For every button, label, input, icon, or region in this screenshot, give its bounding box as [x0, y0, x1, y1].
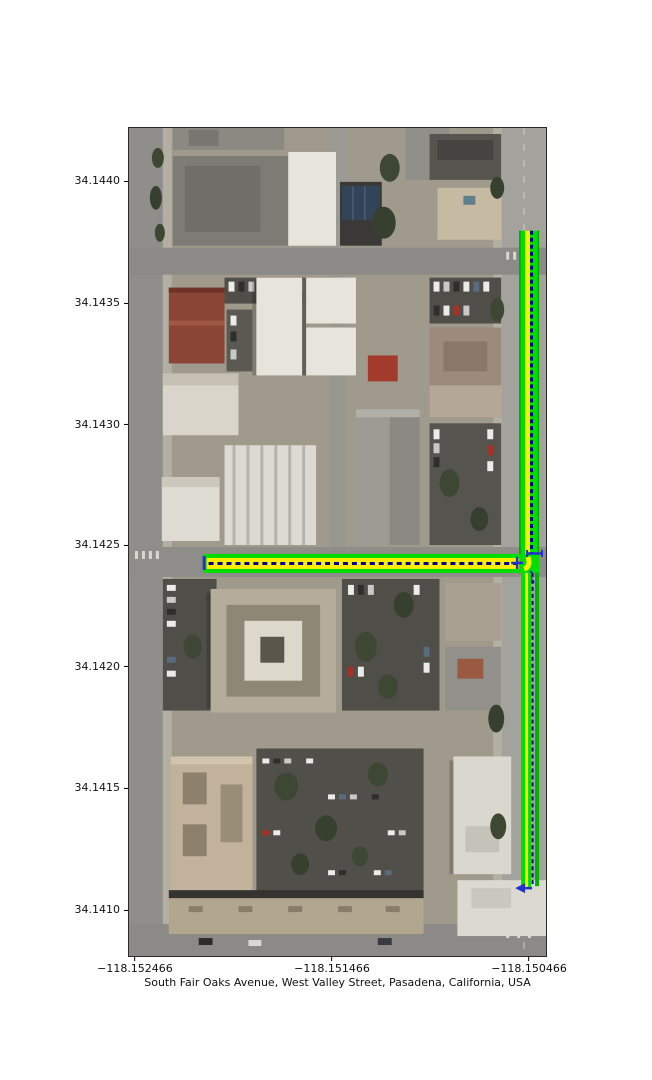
route-valley-street: [203, 554, 531, 573]
x-tick-label: −118.152466: [97, 963, 173, 975]
y-tick: 34.1425: [75, 539, 129, 551]
satellite-map: [129, 128, 546, 956]
y-tick-label: 34.1435: [75, 297, 121, 309]
y-tick: 34.1435: [75, 297, 129, 309]
x-tick-mark: [529, 957, 530, 961]
route-fair-oaks-upper: [519, 231, 539, 556]
y-tick-mark: [124, 910, 128, 911]
map-plot: 34.144034.143534.143034.142534.142034.14…: [128, 127, 547, 957]
x-tick-mark: [332, 957, 333, 961]
y-tick-label: 34.1410: [75, 904, 121, 916]
y-tick-label: 34.1415: [75, 782, 121, 794]
y-tick-mark: [124, 666, 128, 667]
y-tick-mark: [124, 424, 128, 425]
y-tick-label: 34.1420: [75, 661, 121, 673]
route-west-end-cap: [203, 556, 206, 570]
y-tick-mark: [124, 303, 128, 304]
x-tick-mark: [134, 957, 135, 961]
plot-xlabel: South Fair Oaks Avenue, West Valley Stre…: [128, 976, 547, 989]
y-tick-label: 34.1440: [75, 175, 121, 187]
x-tick-label: −118.151466: [294, 963, 370, 975]
x-tick: −118.150466: [491, 957, 567, 975]
y-tick-mark: [124, 181, 128, 182]
y-tick: 34.1430: [75, 419, 129, 431]
y-tick-label: 34.1425: [75, 539, 121, 551]
y-tick: 34.1420: [75, 661, 129, 673]
x-tick: −118.151466: [294, 957, 370, 975]
y-tick-mark: [124, 788, 128, 789]
x-tick: −118.152466: [97, 957, 173, 975]
x-tick-label: −118.150466: [491, 963, 567, 975]
y-tick: 34.1410: [75, 904, 129, 916]
y-tick: 34.1440: [75, 175, 129, 187]
y-tick: 34.1415: [75, 782, 129, 794]
y-tick-label: 34.1430: [75, 419, 121, 431]
figure: 34.144034.143534.143034.142534.142034.14…: [0, 0, 652, 1080]
y-tick-mark: [124, 544, 128, 545]
